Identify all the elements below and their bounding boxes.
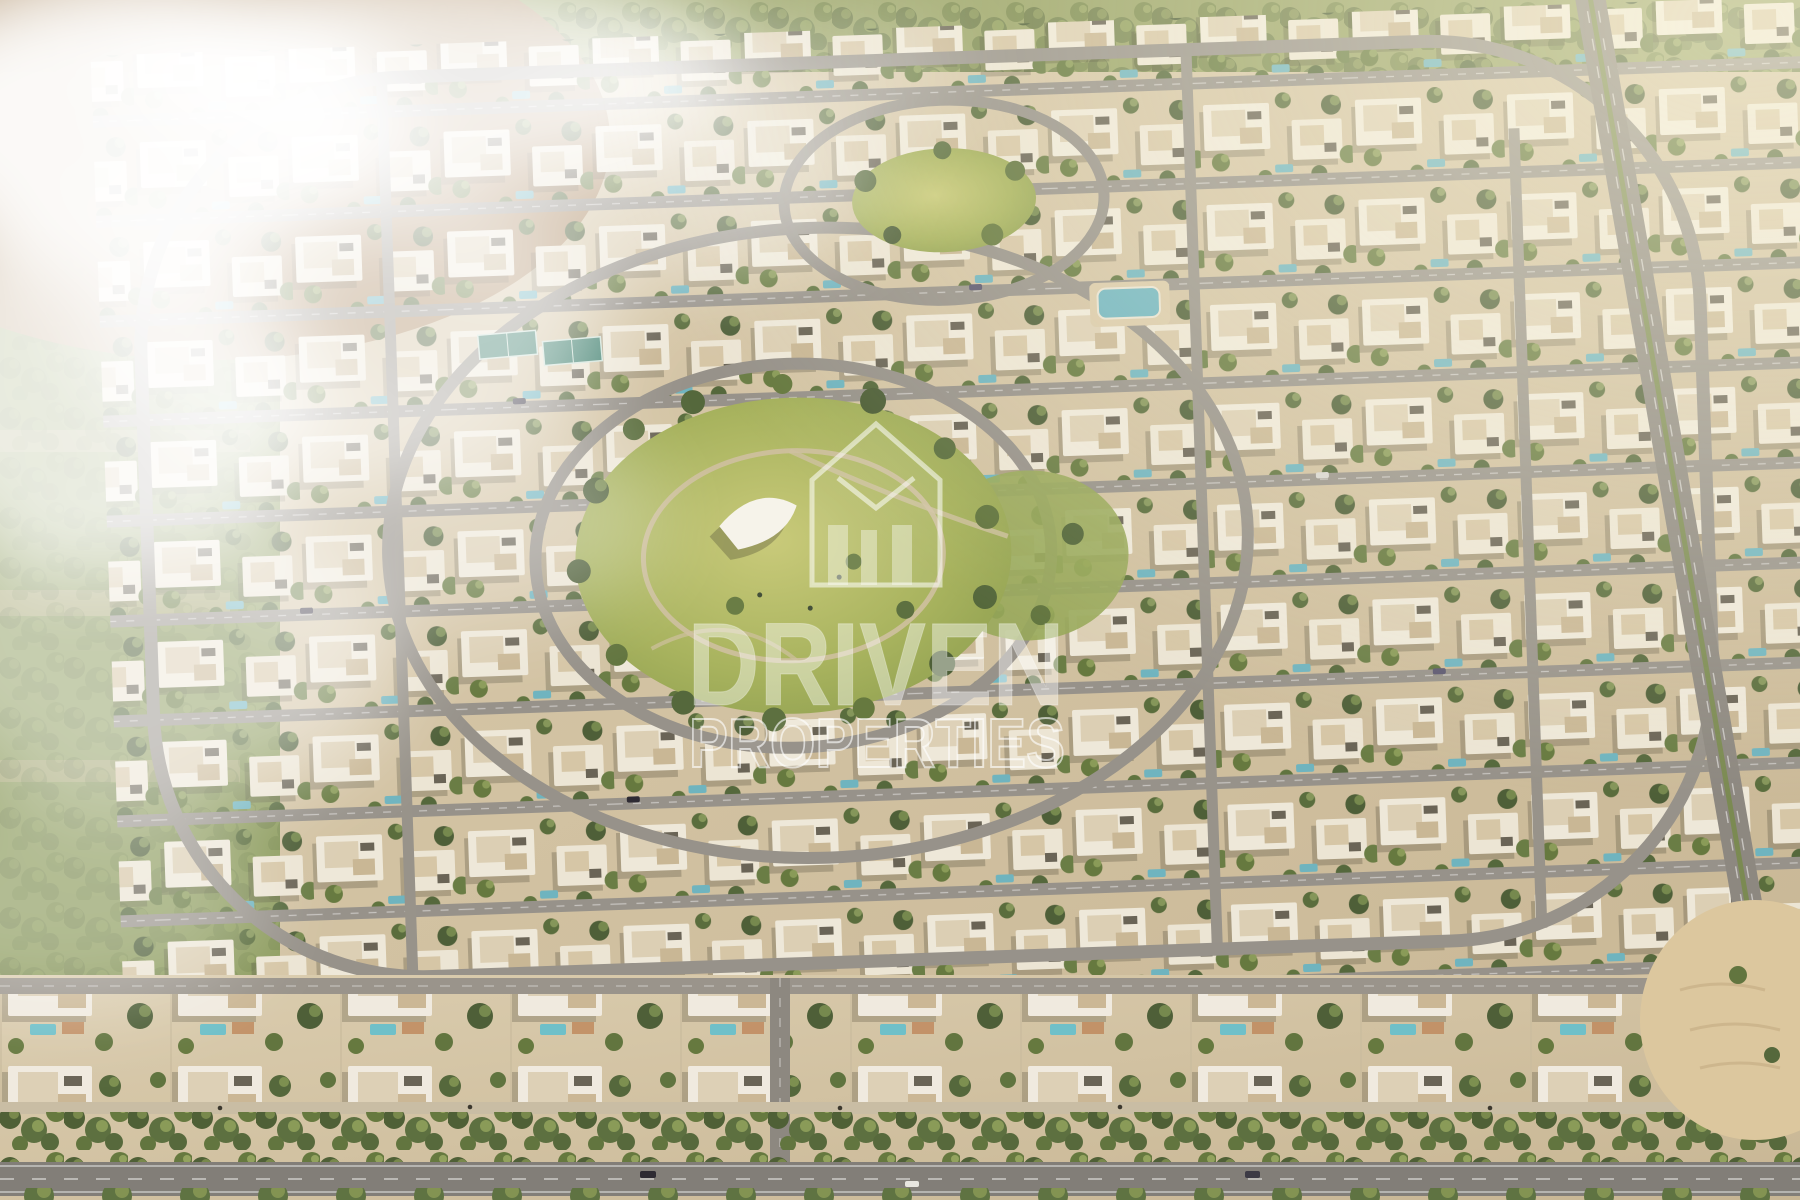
watermark-brand-sub: PROPERTIES (689, 704, 1065, 782)
aerial-render-scene: DRIVEN PROPERTIES (0, 0, 1800, 1200)
aerial-scene-canvas: DRIVEN PROPERTIES (0, 0, 1800, 1200)
